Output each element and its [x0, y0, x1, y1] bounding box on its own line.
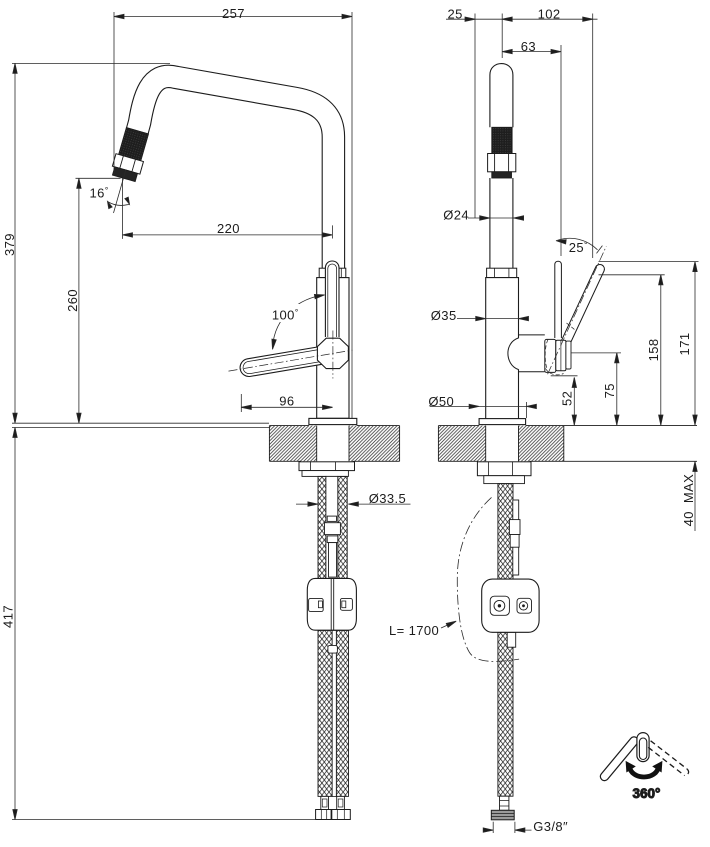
svg-text:Ø24: Ø24	[443, 207, 469, 222]
svg-text:100°: 100°	[272, 307, 299, 322]
svg-text:25: 25	[447, 6, 462, 21]
svg-text:360°: 360°	[633, 786, 661, 801]
svg-text:Ø33.5: Ø33.5	[369, 491, 406, 506]
svg-text:379: 379	[2, 233, 17, 256]
svg-text:220: 220	[217, 221, 240, 236]
svg-text:Ø50: Ø50	[428, 394, 454, 409]
svg-text:52: 52	[560, 391, 575, 406]
svg-text:63: 63	[521, 39, 536, 54]
svg-text:158: 158	[646, 338, 661, 361]
svg-text:75: 75	[602, 383, 617, 398]
svg-text:L= 1700: L= 1700	[389, 623, 439, 638]
svg-text:40 MAX: 40 MAX	[681, 474, 696, 527]
svg-text:257: 257	[222, 6, 245, 21]
svg-text:96: 96	[279, 394, 294, 409]
svg-text:417: 417	[0, 605, 15, 628]
svg-text:260: 260	[65, 289, 80, 312]
svg-text:102: 102	[538, 6, 561, 21]
svg-text:171: 171	[677, 333, 692, 356]
svg-text:Ø35: Ø35	[431, 308, 457, 323]
svg-text:G3/8″: G3/8″	[533, 819, 568, 834]
